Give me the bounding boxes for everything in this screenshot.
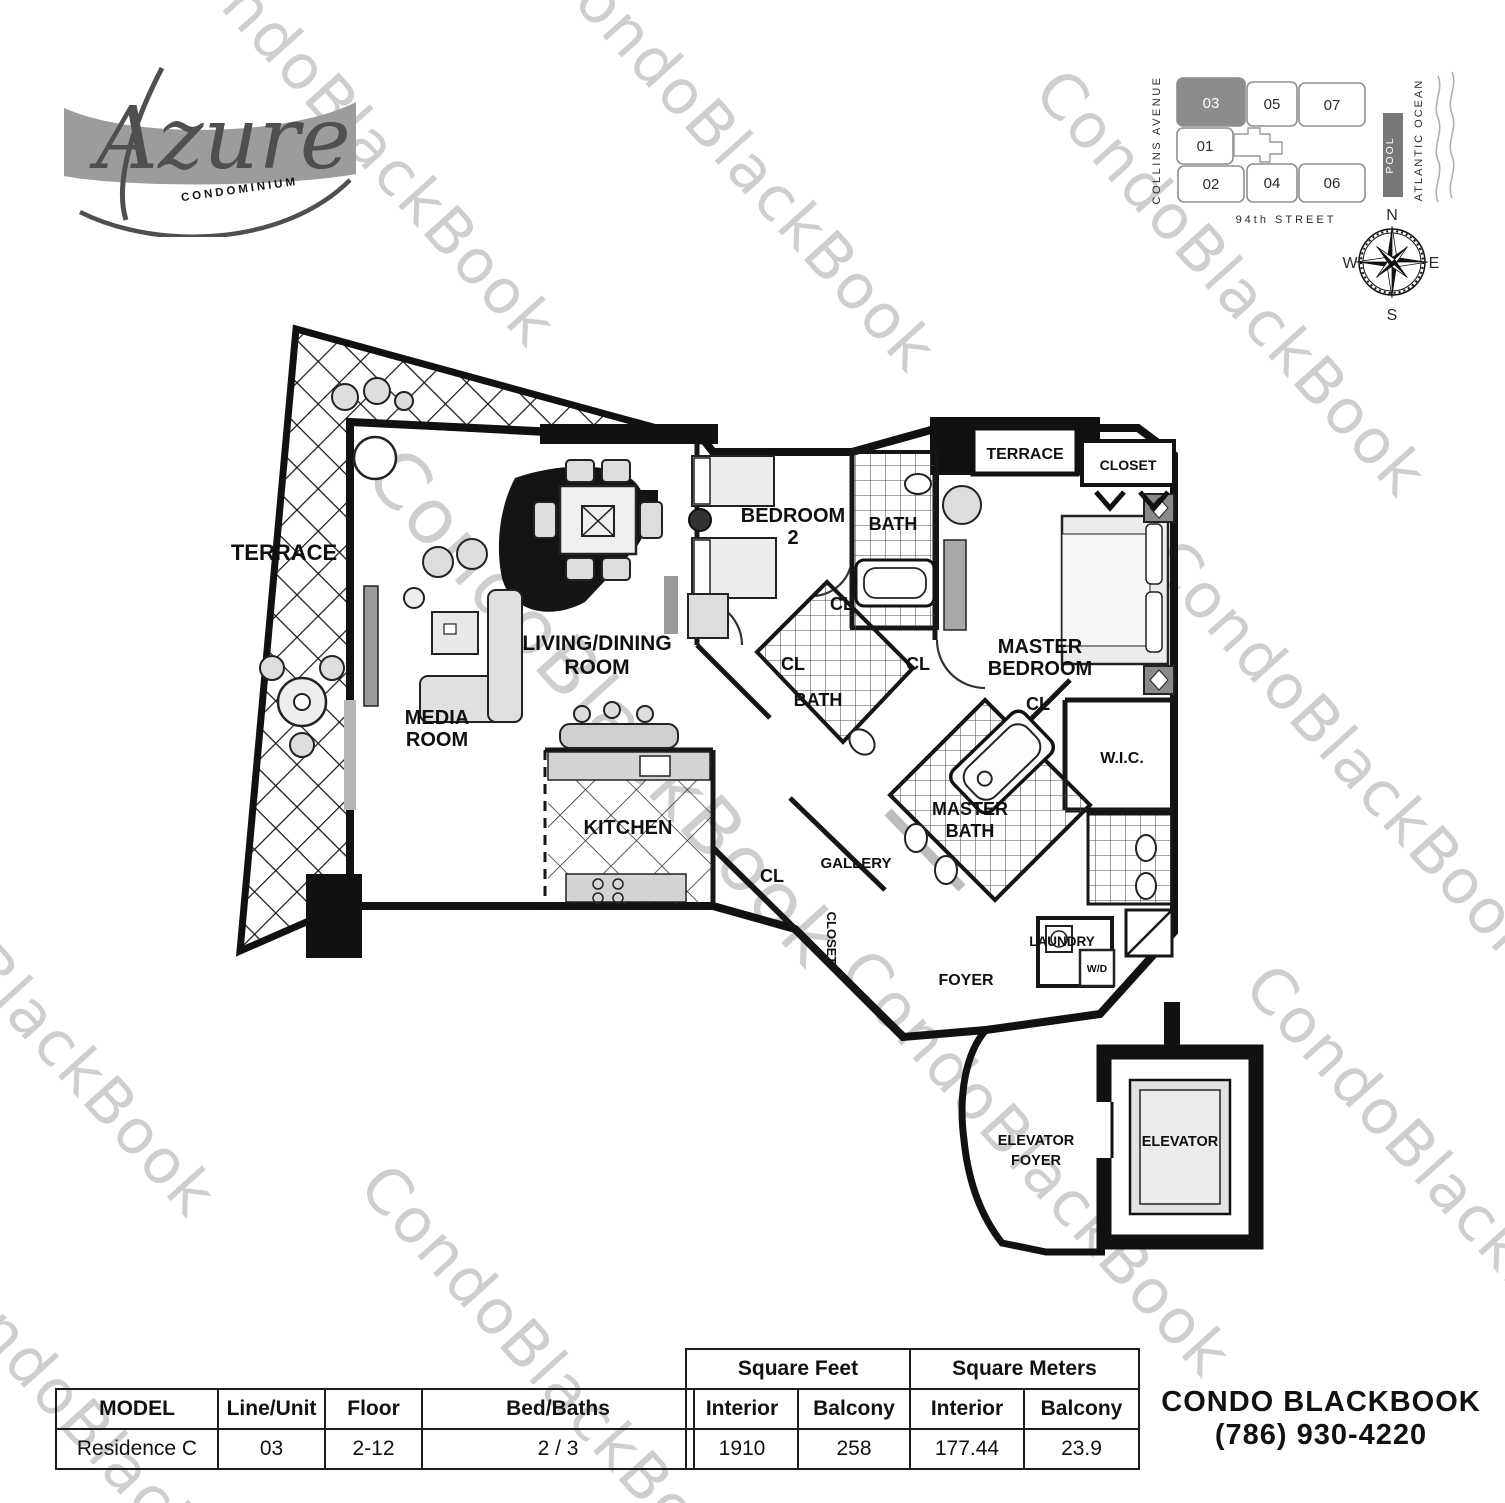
media-room-furniture bbox=[364, 539, 522, 722]
label-closet-corridor: CLOSET bbox=[824, 912, 839, 965]
col-line-unit: Line/Unit bbox=[218, 1389, 325, 1429]
west-window bbox=[344, 700, 356, 810]
cell-floor: 2-12 bbox=[325, 1429, 422, 1469]
label-laundry: LAUNDRY bbox=[1029, 934, 1095, 949]
elevator-door-gap bbox=[1096, 1102, 1112, 1158]
ocean-waves bbox=[1436, 72, 1453, 202]
round-table bbox=[354, 437, 396, 479]
label-wd: W/D bbox=[1087, 963, 1108, 975]
cell-sqm-interior: 177.44 bbox=[910, 1429, 1024, 1469]
unit-label-01: 01 bbox=[1197, 138, 1214, 155]
label-bath3: BATH bbox=[794, 690, 843, 710]
table-row: Residence C 03 2-12 2 / 3 bbox=[56, 1429, 694, 1469]
label-elevator-foyer-2: FOYER bbox=[1011, 1153, 1061, 1169]
label-cl: CL bbox=[906, 654, 930, 674]
bar-counter bbox=[560, 724, 678, 748]
unit-label-02: 02 bbox=[1203, 176, 1220, 193]
label-elevator-foyer: ELEVATOR bbox=[998, 1133, 1075, 1149]
label-living-dining-2: ROOM bbox=[564, 656, 629, 679]
floorplan-sheet: CondoBlackBook CondoBlackBook CondoBlack… bbox=[0, 0, 1505, 1503]
kitchen-sink bbox=[640, 756, 670, 776]
table-row: 1910 258 177.44 23.9 bbox=[686, 1429, 1139, 1469]
compass-s: S bbox=[1387, 307, 1398, 324]
cell-sqft-interior: 1910 bbox=[686, 1429, 798, 1469]
col-sqm-balcony: Balcony bbox=[1024, 1389, 1139, 1429]
compass-rose: N E S W bbox=[1342, 207, 1439, 324]
col-sqft-interior: Interior bbox=[686, 1389, 798, 1429]
label-terrace: TERRACE bbox=[231, 540, 337, 565]
label-master-bath: MASTER bbox=[932, 799, 1008, 819]
label-wic: W.I.C. bbox=[1100, 750, 1144, 767]
toilet-room-tile bbox=[1088, 814, 1172, 904]
unit-label-04: 04 bbox=[1264, 175, 1281, 192]
label-closet: CLOSET bbox=[1100, 457, 1157, 473]
spec-table-left: MODEL Line/Unit Floor Bed/Baths Residenc… bbox=[55, 1388, 695, 1470]
label-cl: CL bbox=[830, 594, 854, 614]
cell-model: Residence C bbox=[56, 1429, 218, 1469]
azure-logo: Azure CONDOMINIUM bbox=[50, 62, 380, 237]
col-floor: Floor bbox=[325, 1389, 422, 1429]
col-model: MODEL bbox=[56, 1389, 218, 1429]
label-living-dining: LIVING/DINING bbox=[522, 632, 671, 655]
label-cl: CL bbox=[1026, 694, 1050, 714]
label-master-bedroom: MASTER bbox=[998, 636, 1083, 658]
label-gallery: GALLERY bbox=[820, 855, 891, 872]
cell-sqft-balcony: 258 bbox=[798, 1429, 910, 1469]
pool-label: POOL bbox=[1384, 136, 1396, 173]
label-bedroom2-2: 2 bbox=[787, 527, 798, 549]
collins-avenue-label: COLLINS AVENUE bbox=[1151, 76, 1163, 205]
cell-line-unit: 03 bbox=[218, 1429, 325, 1469]
col-bed-baths: Bed/Baths bbox=[422, 1389, 694, 1429]
cell-bed-baths: 2 / 3 bbox=[422, 1429, 694, 1469]
logo-name: Azure bbox=[89, 89, 351, 189]
compass-e: E bbox=[1429, 255, 1440, 272]
gallery-wall bbox=[713, 848, 903, 1035]
label-terrace2: TERRACE bbox=[986, 446, 1064, 463]
site-map: COLLINS AVENUE ATLANTIC OCEAN 03 05 07 0… bbox=[1138, 58, 1478, 338]
label-master-bedroom-2: BEDROOM bbox=[988, 658, 1092, 680]
label-bedroom2: BEDROOM bbox=[741, 505, 845, 527]
unit-label-03: 03 bbox=[1203, 95, 1220, 112]
unit-label-05: 05 bbox=[1264, 96, 1281, 113]
label-media-room-2: ROOM bbox=[406, 729, 468, 751]
label-media-room: MEDIA bbox=[405, 707, 469, 729]
col-sqm-interior: Interior bbox=[910, 1389, 1024, 1429]
label-bath2: BATH bbox=[869, 514, 918, 534]
label-master-bath-2: BATH bbox=[946, 821, 995, 841]
kitchen-counter bbox=[566, 874, 686, 902]
phone-number: (786) 930-4220 bbox=[1138, 1419, 1504, 1452]
col-sqft-balcony: Balcony bbox=[798, 1389, 910, 1429]
spec-table-right: Square Feet Square Meters Interior Balco… bbox=[685, 1348, 1140, 1470]
label-cl: CL bbox=[760, 866, 784, 886]
label-foyer: FOYER bbox=[938, 972, 994, 989]
window-band bbox=[540, 424, 718, 444]
group-square-feet: Square Feet bbox=[686, 1349, 910, 1389]
core-shape bbox=[1234, 128, 1282, 162]
label-elevator: ELEVATOR bbox=[1142, 1134, 1219, 1150]
unit-label-07: 07 bbox=[1324, 97, 1341, 114]
brand-name: CONDO BLACKBOOK bbox=[1138, 1386, 1504, 1419]
bedroom2-furniture bbox=[664, 456, 776, 638]
compass-w: W bbox=[1342, 255, 1358, 272]
compass-n: N bbox=[1386, 207, 1398, 224]
cell-sqm-balcony: 23.9 bbox=[1024, 1429, 1139, 1469]
label-cl: CL bbox=[781, 654, 805, 674]
kitchen-counter bbox=[548, 752, 710, 780]
bar-stools bbox=[574, 702, 653, 722]
footer-contact: CONDO BLACKBOOK (786) 930-4220 bbox=[1138, 1386, 1504, 1452]
compass-star bbox=[1356, 226, 1428, 298]
street-label: 94th STREET bbox=[1236, 214, 1337, 226]
label-kitchen: KITCHEN bbox=[584, 817, 673, 839]
group-square-meters: Square Meters bbox=[910, 1349, 1139, 1389]
unit-label-06: 06 bbox=[1324, 175, 1341, 192]
terrace-table-center bbox=[294, 694, 310, 710]
atlantic-ocean-label: ATLANTIC OCEAN bbox=[1413, 79, 1425, 202]
